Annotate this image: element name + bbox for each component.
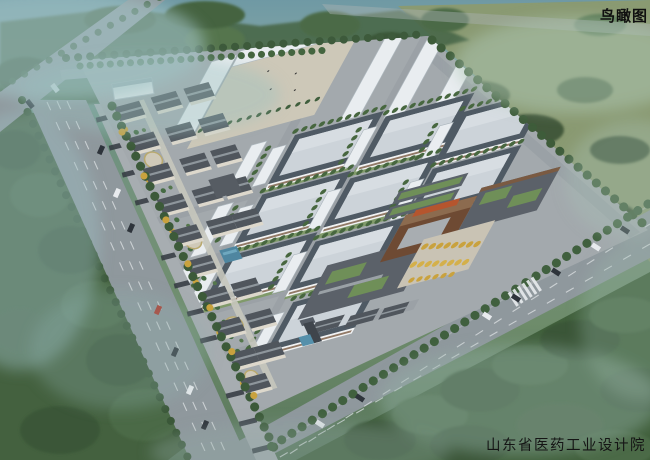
credit-text: 山东省医药工业设计院 (486, 437, 646, 454)
view-title: 鸟瞰图 (600, 7, 648, 25)
rendering-canvas: 鸟瞰图 山东省医药工业设计院 (0, 0, 650, 460)
birdseye-rendering: 鸟瞰图 山东省医药工业设计院 (0, 0, 650, 460)
